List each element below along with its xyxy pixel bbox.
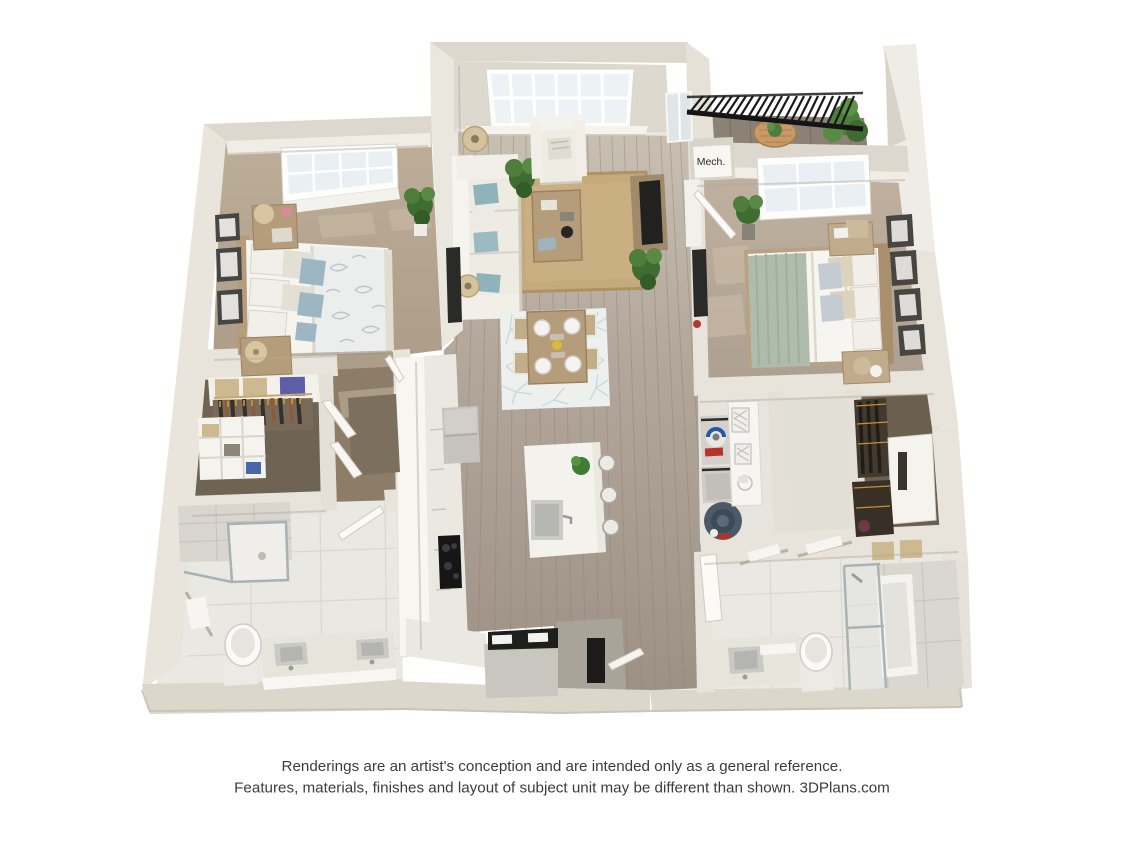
svg-text:Renderings are an artist's con: Renderings are an artist's conception an… <box>282 758 843 775</box>
svg-text:Features, materials, finishes: Features, materials, finishes and layout… <box>234 780 890 797</box>
svg-text:Mech.: Mech. <box>697 156 726 168</box>
